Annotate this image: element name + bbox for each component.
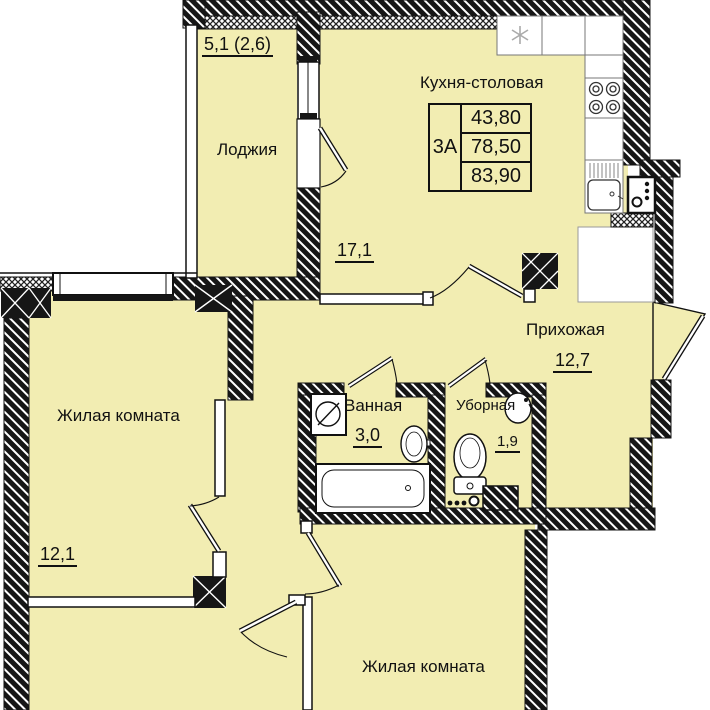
toilet-area-value: 1,9: [495, 433, 520, 453]
living-bottom-name-label: Жилая комната: [362, 657, 485, 677]
wall-toilet-right: [532, 395, 546, 510]
wall-left-outer: [4, 318, 29, 710]
kitchen-name-label: Кухня-столовая: [420, 73, 543, 93]
jamb-bottomroom-door: [301, 521, 312, 533]
jamb-kitchen-door-right: [524, 289, 535, 302]
partition-kitchen-hallway: [320, 294, 424, 304]
living-room-bottom: [305, 522, 535, 710]
living-left-area-label: 12,1: [38, 544, 77, 565]
unit-areas: 43,80 78,50 83,90: [462, 105, 530, 190]
insulation-strip: [611, 213, 653, 227]
loggia-area-label: 5,1 (2,6): [202, 34, 273, 55]
wall-right-below-door: [651, 380, 671, 438]
loggia-kitchen-window: [298, 56, 319, 119]
partition-bottomleft-top: [28, 597, 195, 607]
partition-bottomrooms: [303, 597, 312, 710]
wall-top-insulation: [197, 16, 497, 29]
toilet-name-label: Уборная: [456, 397, 515, 414]
bathroom-area-value: 3,0: [353, 425, 382, 448]
bathroom-area-label: 3,0: [353, 425, 382, 446]
column-partition-junction: [193, 576, 226, 608]
kitchen-area-value: 17,1: [335, 240, 374, 263]
hallway-area-label: 12,7: [553, 350, 592, 371]
washing-machine-icon: [311, 394, 346, 435]
wall-right-upper: [655, 177, 673, 303]
toilet-area-label: 1,9: [495, 433, 520, 451]
kitchen-counter-top: [497, 16, 623, 55]
wall-right-step: [640, 160, 680, 177]
entrance-bay: [653, 302, 705, 380]
loggia-glazing: [186, 25, 197, 278]
living-left-area-value: 12,1: [38, 544, 77, 567]
duct-box: [628, 177, 655, 213]
living-left-name-label: Жилая комната: [57, 406, 180, 426]
column-loggia: [195, 285, 232, 312]
unit-area-total-with-loggia: 83,90: [462, 161, 530, 190]
unit-area-living: 43,80: [462, 105, 530, 132]
wall-hallway-bottom: [538, 508, 655, 530]
toilet-icon: [454, 434, 486, 494]
floor-plan-drawing: [0, 0, 710, 710]
unit-summary-table: 3А 43,80 78,50 83,90: [428, 103, 532, 192]
wall-top: [183, 0, 650, 16]
jamb-livingleft-door: [213, 552, 226, 577]
loggia-area-value: 5,1 (2,6): [202, 34, 273, 57]
column-left-corner: [1, 288, 51, 318]
hallway-name-label: Прихожая: [526, 320, 605, 340]
bathroom-name-label: Ванная: [344, 396, 402, 416]
hallway-area-value: 12,7: [553, 350, 592, 373]
floor-plan: 5,1 (2,6) Лоджия Кухня-столовая 3А 43,80…: [0, 0, 710, 710]
living-left-window: [53, 273, 173, 301]
loggia-name-label: Лоджия: [217, 140, 277, 160]
wall-bottomroom-right: [525, 530, 547, 710]
partition-livingleft: [215, 400, 225, 496]
unit-area-total: 78,50: [462, 132, 530, 161]
jamb-kitchen-door: [423, 292, 433, 305]
wall-top-left-stub: [183, 0, 205, 28]
wall-right-lower: [630, 438, 652, 510]
kitchen-area-label: 17,1: [335, 240, 374, 261]
wall-kitchen-right: [623, 0, 650, 165]
hallway-niche: [578, 227, 653, 302]
shaft-hatch-box: [483, 486, 518, 510]
unit-type: 3А: [430, 105, 462, 190]
bathtub-icon: [316, 464, 430, 513]
column-kitchen-hall: [522, 253, 558, 289]
wall-loggia-kitchen-bottom: [297, 188, 320, 277]
